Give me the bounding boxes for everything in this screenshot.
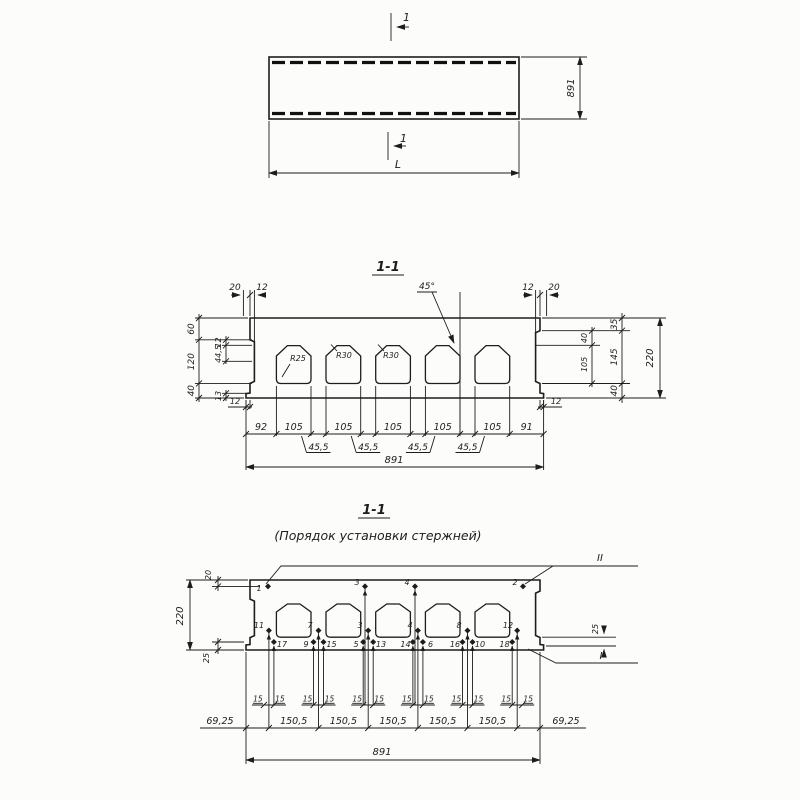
group-leader-top (266, 566, 638, 584)
extension-lines (246, 652, 540, 764)
void-shape (326, 604, 361, 637)
rod-number: 18 (499, 640, 509, 649)
rod-number: 16 (450, 640, 460, 649)
dim-label-half-step: 45,5 (358, 443, 378, 453)
dim-label: 40 (187, 385, 197, 397)
rod-number: 7 (307, 621, 313, 630)
rod-number: 3 (354, 578, 359, 587)
rod-number: 5 (353, 640, 358, 649)
rod-number: 9 (303, 640, 308, 649)
dim-label: 91 (521, 422, 533, 433)
radius-leader (378, 345, 384, 352)
slab-plan-outline (269, 57, 519, 119)
order-subtitle: (Порядок установки стержней) (274, 528, 481, 543)
section-title: 1-1 (376, 260, 400, 275)
rod-point-markers (265, 583, 526, 645)
extension-lines (542, 637, 616, 646)
radius-label: R30 (383, 351, 399, 360)
pair-spacing-label: 15 (374, 695, 384, 704)
dim-label-offset-right: 25 (591, 624, 600, 634)
dim-label-height-total: 220 (645, 348, 656, 367)
dim-label-length: L (395, 158, 401, 171)
dim-label: 35 (610, 318, 620, 330)
dim-label: 105 (580, 357, 589, 372)
group-label-top: II (597, 553, 603, 564)
dim-label: 12 (230, 397, 240, 406)
dim-label: 60 (187, 323, 197, 335)
dim-label-width: 891 (566, 78, 577, 97)
dim-label-cover-top: 20 (204, 570, 213, 580)
dim-label: 120 (187, 353, 197, 370)
pair-spacing-label: 15 (402, 695, 412, 704)
rod-number: 3 (357, 621, 362, 630)
rod-number: 8 (456, 621, 461, 630)
rod-number: 1 (256, 584, 261, 593)
dim-label: 13 (214, 391, 223, 401)
void-shape (276, 604, 311, 637)
section-view: 1-1 R25 R30 R30 45° 20 12 12 20 60 120 4… (187, 260, 666, 470)
dim-label: 20 (548, 283, 560, 293)
dim-label-edge-step: 69,25 (206, 716, 233, 727)
rod-number: 17 (277, 640, 288, 649)
void-shape (425, 604, 460, 637)
extension-lines (195, 318, 252, 398)
extension-lines (536, 290, 547, 334)
chamfer-angle-label: 45° (419, 282, 435, 292)
dim-label: 145 (610, 348, 620, 365)
rod-number: 4 (407, 621, 412, 630)
order-title: 1-1 (362, 503, 386, 518)
rod-number: 13 (376, 640, 386, 649)
pair-spacing-label: 15 (325, 695, 335, 704)
dim-label-step: 150,5 (479, 716, 506, 727)
dim-label-half-step: 45,5 (457, 443, 477, 453)
dim-label: 105 (384, 422, 402, 433)
void-shape (475, 346, 510, 384)
dim-label: 20 (229, 283, 241, 293)
rod-number: 2 (512, 578, 517, 587)
dim-label: 12 (256, 283, 268, 293)
dim-label-width-total: 891 (384, 455, 403, 466)
dim-label-half-step: 45,5 (308, 443, 328, 453)
rod-number: 6 (428, 640, 433, 649)
dim-label-cover-bottom: 25 (202, 653, 211, 663)
extension-lines (186, 580, 260, 650)
dim-label-edge-step: 69,25 (552, 716, 579, 727)
plan-view: 1 1 L 891 (269, 11, 587, 178)
rod-number: 14 (400, 640, 410, 649)
rod-number: 11 (254, 621, 264, 630)
extension-lines (246, 400, 544, 409)
radius-leader (282, 364, 290, 377)
pair-spacing-label: 15 (303, 695, 313, 704)
dim-label-height-total: 220 (175, 606, 186, 625)
dim-label: 44,5 (214, 345, 223, 363)
group-label-bottom: I (600, 651, 603, 662)
pair-spacing-label: 15 (501, 695, 511, 704)
dim-label: 12 (522, 283, 534, 293)
dim-label-step: 150,5 (330, 716, 357, 727)
engineering-drawing: 1 1 L 891 1-1 R25 R30 R30 45° 20 12 12 2… (0, 0, 800, 800)
drawing-sheet: 1 1 L 891 1-1 R25 R30 R30 45° 20 12 12 2… (0, 0, 800, 800)
dim-label: 40 (580, 333, 589, 343)
rod-number: 4 (404, 578, 409, 587)
radius-label: R25 (290, 354, 306, 363)
dim-label: 105 (483, 422, 501, 433)
rod-number: 12 (503, 621, 513, 630)
pair-spacing-label: 15 (352, 695, 362, 704)
dim-label: 105 (434, 422, 452, 433)
dim-label-half-step: 45,5 (408, 443, 428, 453)
radius-label: R30 (336, 351, 352, 360)
pair-spacing-label: 15 (452, 695, 462, 704)
group-leader-bottom (528, 649, 638, 663)
void-shape (376, 604, 411, 637)
dim-label: 92 (255, 422, 267, 433)
rod-number: 15 (326, 640, 336, 649)
dim-label: 105 (334, 422, 352, 433)
pair-spacing-label: 15 (523, 695, 533, 704)
dim-label-step: 150,5 (429, 716, 456, 727)
void-shape (276, 346, 311, 384)
pair-spacing-label: 15 (424, 695, 434, 704)
extension-lines-width (521, 57, 587, 119)
pair-spacing-label: 15 (253, 695, 263, 704)
pair-spacing-label: 15 (275, 695, 285, 704)
extension-lines (243, 290, 254, 342)
section-mark-top-label: 1 (403, 11, 410, 24)
rod-order-view: 1-1 (Порядок установки стержней) II I 25… (175, 503, 638, 764)
section-mark-bottom-label: 1 (400, 132, 407, 145)
dim-label-step: 150,5 (280, 716, 307, 727)
dim-label: 40 (610, 385, 620, 397)
dim-label-width-total: 891 (372, 747, 391, 758)
rod-reference-lines (269, 589, 517, 728)
rod-number: 10 (475, 640, 485, 649)
dim-label: 105 (285, 422, 303, 433)
void-shape (425, 346, 460, 384)
dim-label-step: 150,5 (379, 716, 406, 727)
pair-dim-ticks (261, 702, 525, 708)
pair-spacing-label: 15 (474, 695, 484, 704)
